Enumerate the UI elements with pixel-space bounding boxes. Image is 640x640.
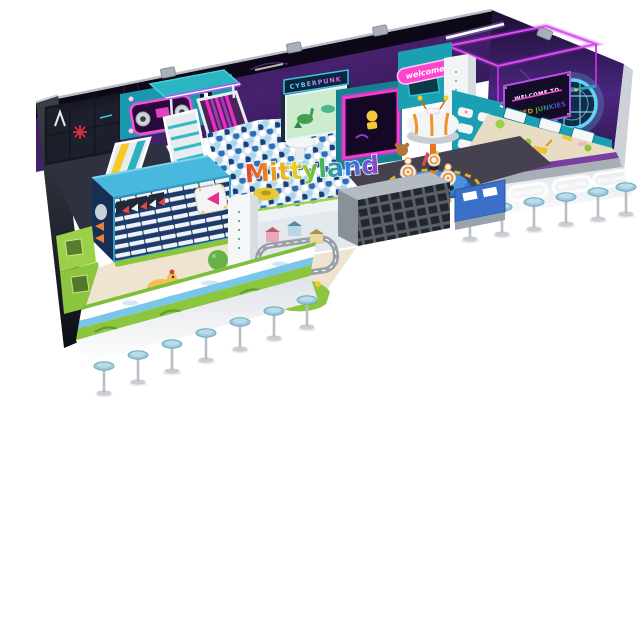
starburst-icon xyxy=(73,125,87,139)
playground-product-render: CYBERPUNK welcome WELCOME T xyxy=(0,0,640,640)
robot-seat-icon xyxy=(428,154,440,171)
marquee-arrow-icon xyxy=(194,183,228,214)
playground-scene: CYBERPUNK welcome WELCOME T xyxy=(0,0,640,640)
